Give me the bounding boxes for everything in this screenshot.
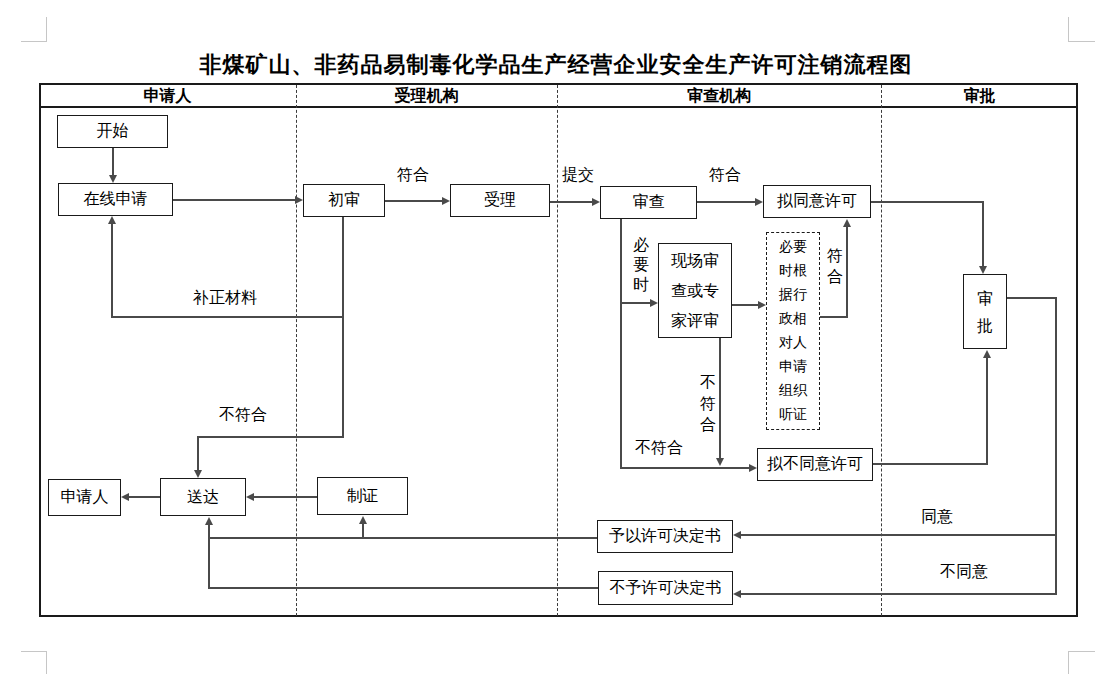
edge-deny-decision-left [208, 587, 598, 589]
node-deliver: 送达 [160, 478, 246, 516]
edge-review-down [620, 219, 622, 469]
arrowhead-into-deny-decision [733, 590, 741, 598]
arrowhead-into-onsite-review [650, 299, 658, 307]
label-not-conform-onsite: 不符合 [700, 372, 716, 435]
arrowhead-into-hearing-note [758, 301, 766, 309]
node-grant-decision: 予以许可决定书 [597, 520, 733, 553]
node-review: 审查 [600, 186, 697, 219]
page-corner-mark-bottom-left [21, 651, 47, 674]
edge-when-necessary-to-onsite [621, 302, 651, 304]
lane-header-approval: 审批 [881, 86, 1078, 106]
arrowhead-into-online-apply-bottom [108, 216, 116, 224]
label-conform-hearing: 符合 [827, 245, 843, 287]
edge-up-to-make-cert [362, 523, 364, 539]
page-corner-mark-top-right [1068, 17, 1095, 42]
arrowhead-into-deliver-right [246, 493, 254, 501]
arrowhead-into-accept [442, 197, 450, 205]
lane-header-applicant: 申请人 [39, 86, 296, 106]
label-when-necessary: 必要时 [633, 235, 649, 295]
edge-hearing-up-to-propose-approve [846, 226, 848, 318]
lane-header-accepting-agency: 受理机构 [296, 86, 557, 106]
node-hearing-note: 必要时根据行政相对人申请组织听证 [766, 232, 820, 430]
label-disagree: 不同意 [940, 562, 988, 583]
diagram-title: 非煤矿山、非药品易制毒化学品生产经营企业安全生产许可注销流程图 [0, 50, 1112, 80]
edge-online-apply-to-prelim [173, 199, 296, 201]
node-onsite-or-expert-review-label: 现场审查或专家评审 [671, 246, 719, 336]
edge-notconform-horizontal [197, 436, 344, 438]
arrowhead-onsite-notconform-down [716, 458, 724, 466]
edge-prelim-down [342, 217, 344, 438]
node-deny-decision: 不予许可决定书 [598, 571, 733, 605]
header-separator-line [39, 106, 1078, 108]
edge-approval-right [1007, 297, 1057, 299]
edge-approval-down [1055, 297, 1057, 595]
page-corner-mark-bottom-right [1068, 651, 1095, 674]
edge-to-propose-disapprove [620, 467, 750, 469]
edge-accept-to-review [550, 201, 593, 203]
edge-propose-approve-down-to-approval [982, 201, 984, 267]
label-not-conform-prelim: 不符合 [219, 405, 267, 426]
node-approval-label: 审批 [977, 285, 993, 339]
arrowhead-into-make-cert [359, 516, 367, 524]
edge-disagree-to-deny-decision [741, 593, 1057, 595]
node-propose-disapprove: 拟不同意许可 [757, 448, 873, 481]
edge-deliver-to-applicant [128, 496, 160, 498]
edge-supplement-up-to-online-apply [111, 223, 113, 318]
label-submit: 提交 [562, 165, 594, 186]
edge-up-to-approval [986, 357, 988, 465]
lane-divider-3 [881, 85, 882, 616]
edge-review-to-propose-approve [697, 201, 756, 203]
arrowhead-into-applicant [121, 493, 129, 501]
label-conform-prelim: 符合 [397, 165, 429, 186]
label-conform-review: 符合 [709, 165, 741, 186]
label-not-conform-review: 不符合 [635, 438, 683, 459]
arrowhead-into-propose-approve [755, 198, 763, 206]
node-hearing-note-label: 必要时根据行政相对人申请组织听证 [779, 235, 807, 427]
node-accept: 受理 [450, 184, 550, 217]
arrowhead-into-propose-approve-bottom [843, 219, 851, 227]
node-make-certificate: 制证 [317, 477, 408, 515]
edge-grant-decision-left [210, 537, 597, 539]
node-approval: 审批 [963, 274, 1007, 349]
edge-propose-disapprove-right [873, 463, 988, 465]
arrowhead-into-deliver-bottom [205, 517, 213, 525]
arrowhead-into-propose-disapprove [749, 464, 757, 472]
arrowhead-into-prelim [295, 196, 303, 204]
edge-onsite-to-hearing [732, 304, 759, 306]
edge-make-cert-to-deliver [253, 496, 317, 498]
node-propose-approve: 拟同意许可 [763, 185, 871, 218]
edge-onsite-notconform-down [719, 338, 721, 459]
arrowhead-into-approval-top [979, 266, 987, 274]
edge-agree-to-grant-decision [741, 534, 1057, 536]
edge-start-to-online-apply [112, 148, 114, 177]
edge-up-to-deliver [208, 524, 210, 589]
page-corner-mark-top-left [21, 17, 47, 42]
node-start: 开始 [57, 115, 168, 148]
node-onsite-or-expert-review: 现场审查或专家评审 [658, 243, 732, 338]
arrowhead-into-approval-bottom [983, 350, 991, 358]
node-applicant-receive: 申请人 [48, 479, 121, 516]
arrowhead-into-online-apply-top [109, 175, 117, 183]
edge-hearing-right [820, 316, 848, 318]
edge-supplement-horizontal [112, 316, 343, 318]
node-preliminary-review: 初审 [303, 184, 385, 217]
edge-notconform-down-to-deliver [197, 437, 199, 471]
label-agree: 同意 [921, 507, 953, 528]
arrowhead-into-review [592, 198, 600, 206]
label-supplement-materials: 补正材料 [193, 288, 257, 309]
flowchart-page: 非煤矿山、非药品易制毒化学品生产经营企业安全生产许可注销流程图 申请人 受理机构… [0, 0, 1112, 675]
edge-propose-approve-right [871, 201, 983, 203]
arrowhead-into-grant-decision [733, 531, 741, 539]
lane-header-review-agency: 审查机构 [557, 86, 881, 106]
node-online-apply: 在线申请 [58, 183, 173, 216]
arrowhead-into-deliver-top [194, 470, 202, 478]
edge-prelim-to-accept [385, 200, 443, 202]
